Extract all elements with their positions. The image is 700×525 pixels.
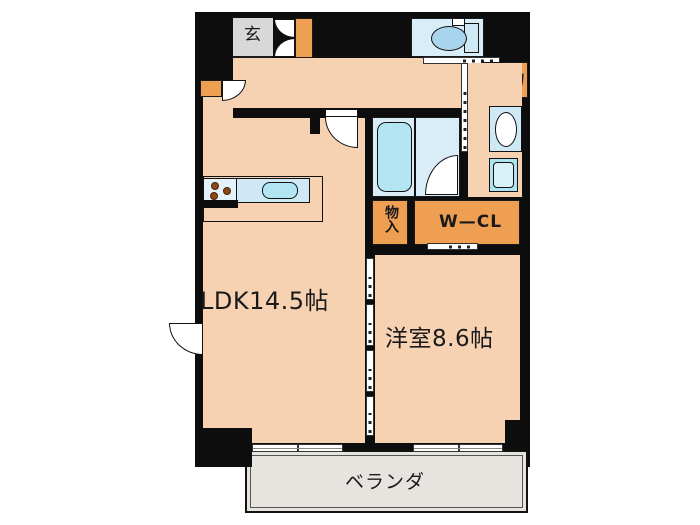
bottom-left-wall-block — [195, 428, 252, 467]
partition-panel — [366, 258, 374, 300]
storage-closet-box: 物入 — [372, 200, 408, 245]
walk-in-closet-label: W—CL — [439, 214, 502, 232]
walk-in-closet-box: W—CL — [414, 200, 520, 245]
stove-icon — [204, 179, 237, 201]
shoe-closet — [295, 18, 313, 58]
ldk-floor — [203, 118, 365, 443]
washing-machine-inner-icon — [493, 162, 514, 188]
toilet-bowl-icon — [431, 26, 467, 51]
genkan-label: 玄 — [244, 27, 261, 45]
hallway-floor — [233, 58, 462, 108]
ldk-window — [252, 444, 343, 452]
kitchen-sink-icon — [262, 182, 298, 199]
storage-closet-label: 物入 — [384, 205, 398, 233]
ldk-label: LDK14.5帖 — [200, 289, 329, 314]
closet-sliding-door — [427, 243, 478, 250]
ldk-door-wall-stub — [310, 118, 320, 134]
kitchen-wall-stub — [195, 200, 238, 208]
bathtub-icon — [377, 122, 412, 192]
western-room-window — [413, 444, 503, 452]
partition-panel — [366, 304, 374, 346]
washroom-sliding-door — [461, 63, 468, 152]
corner-pillar — [505, 420, 520, 443]
exterior-service-door-icon — [169, 323, 203, 355]
ldk-door-leaf-icon — [325, 109, 358, 117]
western-room-label: 洋室8.6帖 — [385, 327, 494, 351]
washbasin-bowl-icon — [495, 112, 517, 147]
floorplan-canvas: ベランダ 玄 物 LDK14.5帖 — [0, 0, 700, 525]
bathroom-divider-line — [414, 118, 416, 196]
partition-panel — [366, 396, 374, 436]
partition-panel — [366, 350, 374, 392]
front-door-frame — [200, 80, 222, 97]
veranda-label: ベランダ — [345, 473, 425, 493]
